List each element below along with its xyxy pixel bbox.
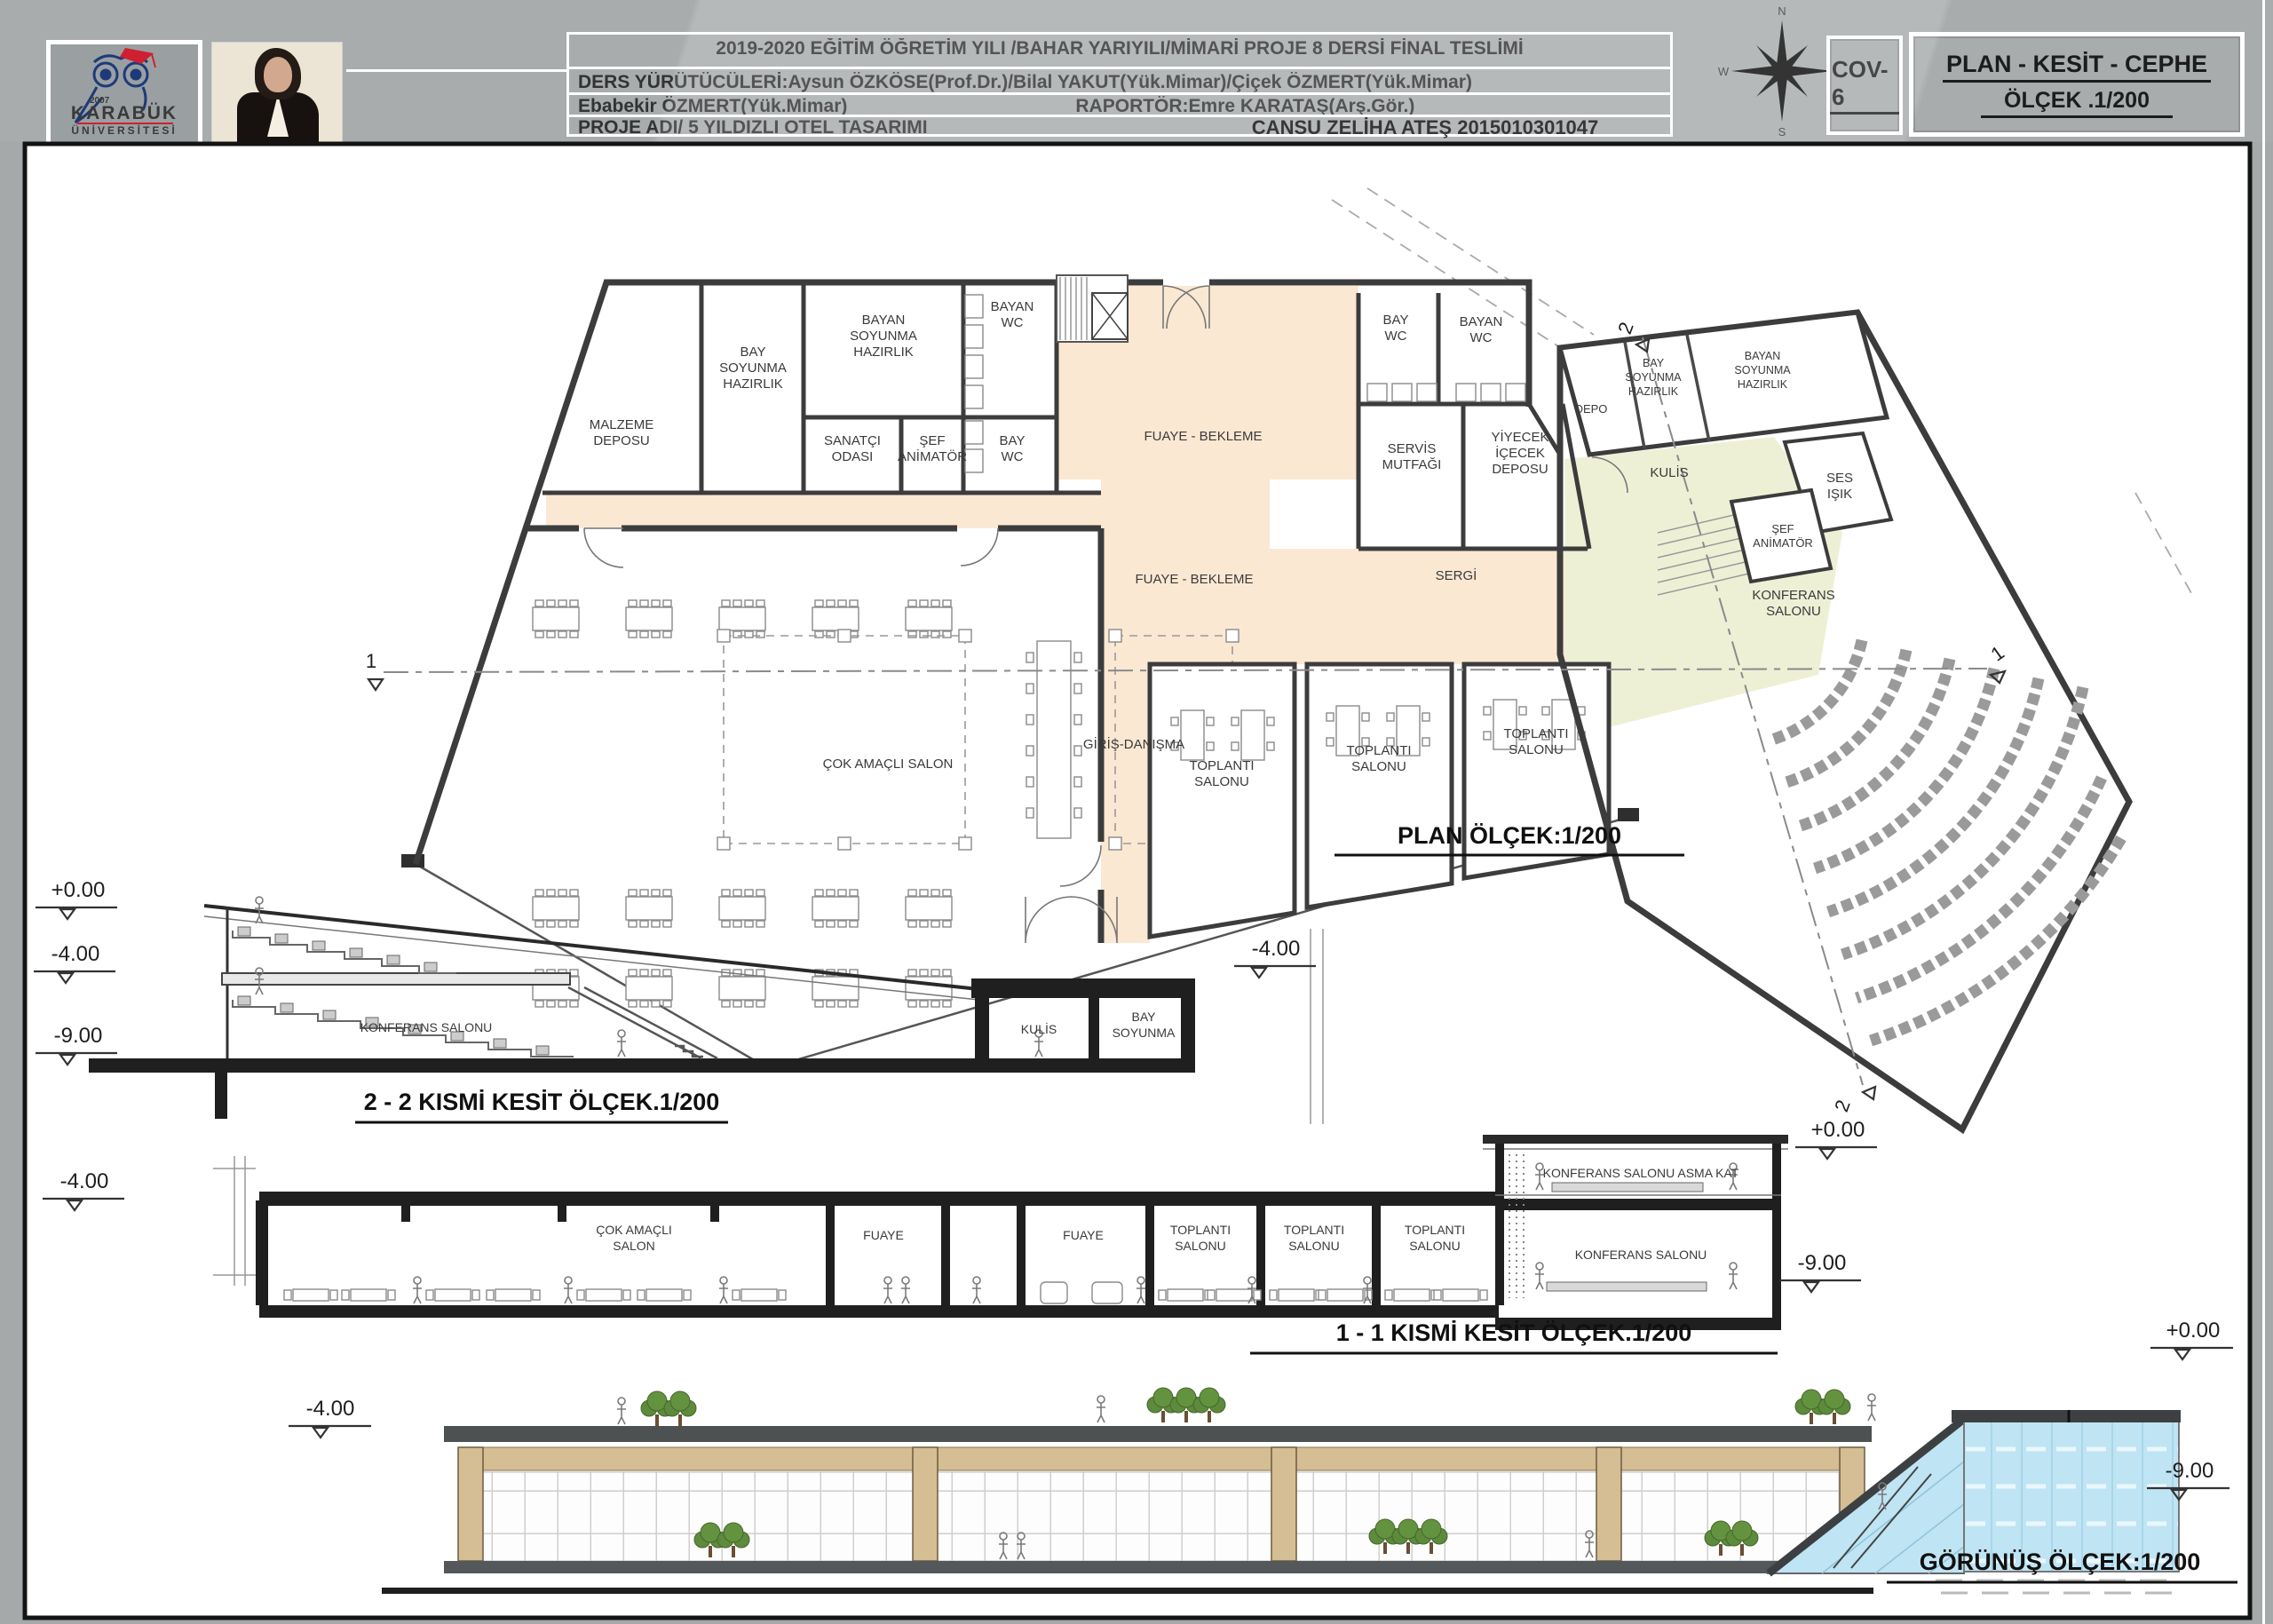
room-label-bay-wc-1: BAY (1000, 433, 1026, 448)
s2-label-kulis: KULİS (1021, 1021, 1057, 1036)
s1-label-cok-2: SALON (613, 1239, 654, 1253)
s2-flat-roof (971, 978, 1195, 998)
drawing-sheet: MALZEME DEPOSU BAY SOYUNMA HAZIRLIK BAYA… (0, 0, 2273, 1624)
room-label-toplanti3-1: TOPLANTI (1503, 726, 1568, 741)
room-label-bay-wc2-2: WC (1385, 329, 1407, 344)
room-label-wing-bayan-soyunma-3: HAZIRLIK (1738, 378, 1788, 391)
room-label-giris: GİRİŞ-DANIŞMA (1083, 736, 1184, 752)
room-label-bayan-wc-1: BAYAN (991, 299, 1034, 314)
s2-level-zero: +0.00 (51, 878, 106, 902)
room-label-sef2-1: ŞEF (1771, 522, 1794, 535)
room-label-bayan-soyunma-1: BAYAN (862, 313, 906, 328)
s1-label-toplanti1-2: SALONU (1175, 1239, 1226, 1253)
el-ground-slab (444, 1561, 1872, 1573)
room-label-ses-isik-1: SES (1826, 471, 1853, 486)
room-label-yiyecek-3: DEPOSU (1492, 462, 1548, 477)
s2-column (1181, 998, 1195, 1058)
s2-floor-slab (89, 1058, 1195, 1073)
wall-chunk (1618, 808, 1639, 821)
el-level-zero: +0.00 (2166, 1319, 2221, 1343)
s1-level-zero: +0.00 (1811, 1118, 1865, 1142)
room-label-fuaye-1: FUAYE - BEKLEME (1144, 429, 1262, 444)
room-label-sanatci-2: ODASI (832, 449, 874, 464)
room-label-yiyecek-1: YİYECEK (1491, 429, 1548, 445)
el-beam (458, 1447, 1865, 1470)
el-glazing (483, 1472, 1840, 1561)
el-roof-slab (444, 1426, 1872, 1442)
room-label-wing-bayan-soyunma-1: BAYAN (1745, 350, 1781, 362)
room-label-sanatci-1: SANATÇI (824, 433, 881, 448)
s1-label-fuaye-2: FUAYE (1063, 1228, 1104, 1242)
room-label-wing-bay-soyunma-2: SOYUNMA (1625, 371, 1682, 384)
room-label-depo: DEPO (1575, 402, 1608, 416)
s1-label-toplanti2-2: SALONU (1288, 1239, 1340, 1253)
room-label-bay-soyunma-1: BAY (741, 345, 766, 360)
el-level-m4: -4.00 (306, 1397, 355, 1421)
room-label-sergi: SERGİ (1436, 567, 1477, 583)
room-label-malzeme-2: DEPOSU (593, 433, 649, 448)
s2-column (1089, 998, 1099, 1058)
el-level-m9: -9.00 (2166, 1459, 2214, 1483)
s1-level-m9: -9.00 (1798, 1251, 1847, 1275)
room-label-toplanti1-2: SALONU (1194, 774, 1249, 789)
room-label-kulis: KULİS (1650, 464, 1688, 480)
s1-label-toplanti1-1: TOPLANTI (1170, 1223, 1231, 1237)
s2-level-m4: -4.00 (51, 942, 100, 966)
s1-label-konferans: KONFERANS SALONU (1575, 1248, 1707, 1262)
s1-label-toplanti3-2: SALONU (1409, 1239, 1461, 1253)
room-label-sef-animator-2: ANİMATÖR (898, 448, 967, 464)
room-label-toplanti1-1: TOPLANTI (1189, 758, 1254, 773)
room-label-bay-soyunma-2: SOYUNMA (719, 360, 787, 376)
s2-label-bay-soyunma-2: SOYUNMA (1113, 1026, 1176, 1040)
room-label-bayan-wc-2: WC (1002, 315, 1024, 330)
plan-title: PLAN ÖLÇEK:1/200 (1398, 822, 1621, 849)
s2-column (975, 998, 989, 1058)
room-label-bay-wc-2: WC (1002, 449, 1024, 464)
room-label-bayan-wc2-2: WC (1470, 330, 1493, 345)
s2-balcony-slab (222, 973, 570, 985)
s2-label-bay-soyunma-1: BAY (1132, 1010, 1157, 1024)
room-label-servis-1: SERVİS (1388, 440, 1437, 456)
room-label-wing-bay-soyunma-1: BAY (1643, 357, 1665, 369)
room-label-toplanti2-1: TOPLANTI (1346, 743, 1411, 758)
room-label-yiyecek-2: İÇECEK (1495, 445, 1545, 461)
s2-foundation (215, 1073, 227, 1119)
room-label-malzeme-1: MALZEME (590, 417, 654, 432)
s1-label-cok-1: ÇOK AMAÇLI (596, 1223, 672, 1237)
room-label-wing-bayan-soyunma-2: SOYUNMA (1734, 364, 1791, 376)
room-label-bayan-soyunma-2: SOYUNMA (850, 329, 917, 344)
s2-level-m9: -9.00 (54, 1024, 103, 1048)
s1-label-toplanti2-1: TOPLANTI (1284, 1223, 1344, 1237)
room-label-wing-bay-soyunma-3: HAZIRLIK (1628, 385, 1679, 398)
room-label-bayan-soyunma-3: HAZIRLIK (853, 345, 914, 360)
s1-level-m4: -4.00 (60, 1169, 109, 1193)
s1-floor-slab (259, 1305, 1499, 1318)
s2-title: 2 - 2 KISMİ KESİT ÖLÇEK.1/200 (364, 1089, 720, 1115)
room-label-fuaye-2: FUAYE - BEKLEME (1135, 572, 1253, 587)
room-label-konferans-2: SALONU (1766, 604, 1821, 619)
room-label-toplanti3-2: SALONU (1509, 742, 1564, 757)
el-title: GÖRÜNÜŞ ÖLÇEK:1/200 (1920, 1549, 2201, 1575)
room-label-toplanti2-2: SALONU (1351, 759, 1406, 774)
s1-label-fuaye-1: FUAYE (863, 1228, 904, 1242)
s1-title: 1 - 1 KISMİ KESİT ÖLÇEK.1/200 (1336, 1319, 1692, 1346)
s2-level-m4-right: -4.00 (1252, 937, 1301, 961)
corridor-fill (546, 495, 1101, 528)
stair-core (1057, 275, 1128, 342)
room-label-sef-animator-1: ŞEF (919, 433, 945, 448)
section-marker-1-left: 1 (366, 650, 376, 672)
room-label-bayan-wc2-1: BAYAN (1460, 314, 1503, 329)
s1-ceiling-slab (259, 1192, 1499, 1206)
room-label-ses-isik-2: IŞIK (1827, 487, 1852, 502)
room-label-servis-2: MUTFAĞI (1382, 457, 1442, 472)
room-label-cok-amacli: ÇOK AMAÇLI SALON (823, 757, 954, 772)
room-label-bay-soyunma-3: HAZIRLIK (723, 376, 783, 392)
s2-label-konferans: KONFERANS SALONU (360, 1020, 493, 1034)
s1-label-asma-kat: KONFERANS SALONU ASMA KAT (1543, 1166, 1739, 1180)
room-label-konferans-1: KONFERANS (1752, 588, 1834, 603)
el-ground-line (382, 1588, 1873, 1594)
room-label-sef2-2: ANİMATÖR (1753, 536, 1813, 550)
s1-label-toplanti3-1: TOPLANTI (1405, 1223, 1465, 1237)
room-label-bay-wc2-1: BAY (1383, 313, 1409, 328)
